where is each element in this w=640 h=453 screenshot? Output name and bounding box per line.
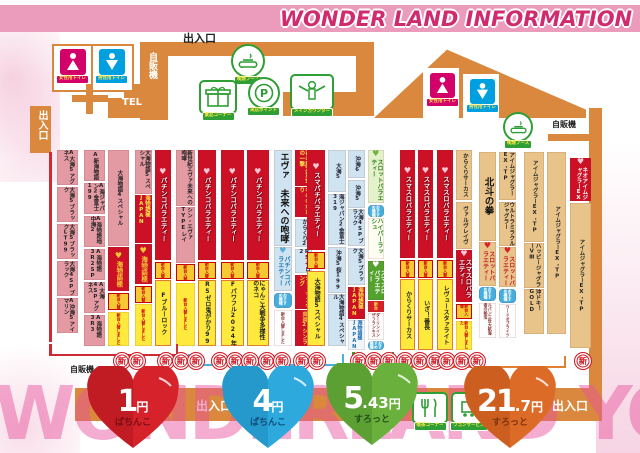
heart-icon: ♥ [159,168,166,176]
machine-name: おすすめ機種 [483,287,491,301]
floor-map-poster: WONDERLAND YOU&I WONDER LAND INFORMATION… [0,0,640,453]
segment-content: ♥海物語極 [140,244,147,284]
machine-name: A大海5アグネス [62,150,74,185]
new-machine-stamp: 新 [574,352,592,370]
machine-name: 新台入替 [205,262,209,278]
segment-content: 海ジャパン2金富士319 [331,194,343,246]
machine-name: 海物語極 [140,256,147,282]
machine-name: 大海5ブラック [350,248,362,285]
rate-type: ぱちんこ [250,415,286,428]
segment-content: 大海5ブラック [62,187,74,222]
machine-segment: 沖海6 [348,150,365,178]
machine-name: 大海4SPブラック [350,209,362,246]
machine-name: 大海5ブラック [62,187,74,222]
machine-column: 大海物語5スペシャル海物語極JAPAN♥海物語極新台入替新台入替しました [135,150,152,346]
rate-amount: 1円 [118,389,149,415]
machine-name: 新台入替 [161,262,165,278]
segment-content: ♥スマスロバラエティー [404,150,411,258]
machine-name: おすすめ機種 [503,289,511,303]
machine-name: ダーリンインザフランキス [372,313,380,340]
machine-name: パチンコバラエティー [254,177,261,242]
segment-content: おすすめ機種 [483,287,491,301]
machine-segment: A大海5アグネス [57,150,78,185]
machine-segment: 沖海5桜199 [328,247,346,293]
machine-segment: アイムジャグラーEX・TP [570,203,591,348]
smoking-glyph [238,51,258,71]
corner-header: ♥スマスロバラエティー [418,150,433,258]
segment-content: 新台入替 [116,293,120,310]
machine-name: A海物語3R2SP [89,249,101,280]
machine-segment: いざ！番長 [418,279,433,350]
machine-name: おすすめ機種 [372,205,380,217]
segment-content: 沖海5 [353,180,359,208]
segment-content: ハイパーラッシュ [369,218,382,259]
machine-name: スマスロバラエティー [457,259,471,302]
machine-segment: 大海5 [328,150,346,192]
rate-label: 21.7円 すろっと [457,366,563,450]
machine-segment: 沖海5 [348,180,365,208]
machine-strip: ♥スマスロバラエティー新台入替からくりサーカス♥スマスロバラエティー新台入替いざ… [400,150,433,350]
new-machine-badge: おすすめ機種 [499,289,516,303]
machine-column: アイムジャグラーEX・TPハッピージャグラーVⅢ沖ドキ！GOLD [524,152,544,334]
segment-content: シン・エヴァTYPEレイ [179,207,191,263]
machine-name: スロットバラエティー [369,159,382,203]
vending-top-label: 自販機 [146,52,159,79]
machine-segment: エヴァ 未来への咆哮 [274,150,292,246]
segment-content: 沖海5桜199 [334,247,340,293]
machine-name: 大海4SPブラック [62,261,74,296]
segment-content: ウルトラミラクルジャグラー [502,202,514,246]
machine-name: ハッピージャグラーVⅢ [528,243,540,288]
machine-segment: 海ジャパン2金富士319 [328,194,346,246]
rate-label: 1円 ぱちんこ [80,366,186,450]
segment-content: 海物語極JAPAN [350,287,362,319]
machine-name: スロットバラエティー [481,251,494,285]
new-machine-stamp: 新 [187,352,205,370]
machine-strip: A大海5アグネス大海5ブラック大海5ブラックLT99大海4SPブラックA沖海5ア… [57,150,78,333]
machine-name: 新台 [374,302,378,310]
machine-segment: 大海物語5スペシャル [307,271,325,346]
machine-column: ♥スロットバラエティーおすすめ機種ハイパーラッシュ♥スマスロバラエティー新台ダー… [368,150,385,350]
rate-type: すろっと [354,412,390,425]
machine-name: おすすめ機種 [279,293,287,308]
bracket-tick [564,356,567,366]
wall-right-ledge [548,134,592,141]
corner-header: ♥パチンコバラエティー [221,150,244,260]
machine-name: 大海物語4スペシャル [116,170,122,226]
new-machine-badge: おすすめ機種 [368,205,385,217]
machine-name: R5ゼロ鬼がかり99 [204,281,210,345]
segment-content: エヴァ 未来への咆哮 [278,150,287,246]
machine-strip: ♥ネオアイムジャグラーEXアイムジャグラーEX・TP [570,158,591,348]
machine-name: 新台入替 [116,293,120,309]
rate-label: 5.43円 すろっと [319,363,425,447]
segment-content: ♥パチンコバラエティー [254,150,261,260]
machine-segment: 新世紀エヴァ未来への咆哮 [176,150,195,206]
machine-name: スロットバラエティー [501,256,514,287]
machine-column: ♥パチンコバラエティー新台入替Fパワフル2024年 [221,150,244,346]
segment-content: アイムジャグラーEX・TP [502,152,514,200]
machine-name: いざ！番長 [422,300,428,330]
machine-name: 新世紀エヴァ未来への咆哮 [179,150,191,206]
smoking-glyph-2 [510,119,527,136]
segment-content: 海物語極JAPAN [137,195,149,243]
machine-strip: 新世紀エヴァ未来への咆哮シン・エヴァTYPEレイ新台入替新台入替しました♥パチン… [176,150,216,346]
new-machine-badge: 新台入替 [176,264,195,281]
entrance-top-label: 出入口 [183,30,216,46]
machine-name: パチンコバラエティー [203,177,210,242]
machine-name: ワードオブライツ [505,305,509,337]
machine-segment: A海ジャパン2金富士199 [84,183,105,214]
segment-content: からくりサーカス [461,150,467,200]
segment-content: 新台 [374,301,378,312]
segment-content: 大海4SPブラック [350,209,362,246]
new-machine-badge: おすすめ機種 [479,287,496,301]
segment-content: からくり2 [300,219,306,247]
machine-column: ♥スマスロバラエティー新台入替レヴュースタァライト [437,150,453,350]
segment-content: 新台入替 [256,262,260,279]
machine-strip: A新海物語A海ジャパン2金富士199A海物語地中海2A海物語3R2SPA大海4S… [84,150,129,346]
heart-icon: ♥ [422,167,429,175]
machine-strip: 沖海6沖海5大海4SPブラック大海5ブラック海物語極JAPAN海物語極JAPAN… [348,150,384,350]
machine-segment: からくりサーカス [456,150,472,200]
machine-segment: 大海物語5スペシャル [135,150,152,194]
segment-content: ワードオブライツ [505,304,509,338]
female-glyph-2 [434,76,451,95]
heart-icon: ♥ [372,261,379,269]
rate-group-bracket [49,330,178,356]
segment-content: からくりサーカス [404,279,410,350]
wall-cross-h [72,95,108,102]
heart-icon: ♥ [504,247,511,255]
new-machine-badge: 新台入替 [108,293,129,310]
segment-content: おすすめ機種 [372,205,380,217]
wall-connector [356,56,374,96]
segment-content: 北斗の拳 [483,152,493,241]
machine-name: アイムジャグラーEX・TP [553,206,559,280]
main-counter-icon: メインカウンター [290,74,334,117]
new-machine-badge: 新台 [368,301,385,312]
machine-name: Fパワフル2024年 [229,281,235,346]
corner-header: ♥スロットバラエティー [499,247,516,287]
segment-content: 新台入替 [460,304,468,320]
tel-label: TEL [122,97,142,108]
segment-content: A大海5アグネス [62,150,74,185]
rate-heart-green: 5.43円 すろっと [319,363,425,447]
segment-content: 新台入替 [405,260,409,278]
vending-right-label: 自販機 [552,119,576,130]
female-toilet-icon-2: 女性用トイレ [426,71,459,107]
segment-content: ♥パチンコバラエティー [203,150,210,260]
machine-segment: アイムジャグラーEX・TP [524,152,544,242]
machine-segment: 大海物語4スペシャル [328,294,346,346]
rate-amount: 21.7円 [477,389,543,415]
segment-content: A沖海5アイマリン [62,298,74,333]
visit-point-icon: P 来店ポイント [247,77,280,116]
heart-icon: ♥ [115,252,122,260]
machine-name: スマスロバラエティー [404,176,411,241]
female-toilet-icon: 女性用トイレ [56,47,89,84]
machine-segment: アイムジャグラーEX・TP [547,152,567,334]
female-glyph [64,52,82,72]
rate-heart-blue: 4円 ぱちんこ [215,366,321,450]
svg-text:P: P [259,87,267,100]
machine-name: 新台入替 [256,262,260,278]
segment-content: 大海4SPブラック [62,261,74,296]
segment-content: レヴュースタァライト [442,279,448,350]
segment-content: ダーリンインザフランキス [372,313,380,340]
machine-name: 海物語極 [115,261,122,287]
segment-content: 新台入替 [443,260,447,278]
machine-segment: R5ゼロ鬼がかり99 [198,280,217,346]
bracket-tick [49,344,52,354]
segment-content: ♥スマスロバラエティー [441,150,448,258]
male-glyph-2 [474,82,491,101]
machine-name: 沖海5桜199 [334,250,340,291]
segment-content: アイムジャグラーEX・TP [578,203,584,348]
counter-staff-glyph [296,80,328,104]
corner-header: ♥スマスロバラエティー [437,150,453,258]
heart-icon: ♥ [140,247,147,255]
machine-name: からくりサーカス [461,153,467,197]
machine-name: A大海4SPアグネス [86,282,103,313]
machine-name: 沖海5 [353,185,359,202]
machine-column: 大海5海ジャパン2金富士319沖海5桜199大海物語4スペシャル [328,150,346,346]
machine-strip: アイムジャグラーEX・TPハッピージャグラーVⅢ沖ドキ！GOLDアイムジャグラー… [524,152,566,334]
machine-column: 北斗の拳♥スロットバラエティーおすすめ機種ルパン三世大航海者の秘宝 [479,152,496,338]
machine-strip: 大海物語5スペシャル海物語極JAPAN♥海物語極新台入替新台入替しました♥パチン… [135,150,171,346]
machine-name: 新台入替 [141,286,145,302]
segment-content: 大海5ブラック [350,248,362,285]
segment-content: ヴァルヴレイヴ [461,202,467,249]
bracket-riser [49,152,52,342]
segment-content: ♥スマスロバラエティー [369,261,382,300]
machine-name: 新台入替 [183,265,187,281]
machine-segment: にゃんこ大戦争多様性のネコ [247,280,270,346]
new-machine-badge: 新台入替 [400,260,415,278]
machine-strip: ♥パチンコバラエティー新台入替Fパワフル2024年♥パチンコバラエティー新台入替… [221,150,269,346]
machine-name: 新台入替 [443,261,447,277]
rate-heart-red: 1円 ぱちんこ [80,366,186,450]
machine-name: 新台入替 [423,261,427,277]
rate-amount: 5.43円 [343,386,400,412]
segment-content: 大海物語5スペシャル [313,271,319,346]
machine-name: アイムジャグラーEX・TP [531,160,537,234]
segment-content: 新台入替 [161,262,165,279]
rate-type: すろっと [492,415,528,428]
machine-name: ヴァルヴレイヴ [461,206,467,245]
machine-column: ♥スマスロバラエティー新台入替いざ！番長 [418,150,433,350]
machine-column: ♥パチンコバラエティー新台入替Fブルーロック [155,150,172,346]
machine-segment: 海物語極JAPAN [348,287,365,319]
segment-content: 新台入替 [230,262,234,279]
segment-content: A海物語地中海2 [89,216,101,247]
segment-content: ♥スロットバラエティー [369,150,382,203]
heart-icon: ♥ [229,168,236,176]
machine-name: 海物語極JAPAN [350,287,362,319]
new-machine-badge: 新台入替 [437,260,453,278]
segment-content: A新海物語 [92,150,98,181]
rate-type: ぱちんこ [115,415,151,428]
machine-name: にゃんこ大戦争多様性のネコ [251,280,264,346]
smoking-booth-icon-2: 喫煙ブース [503,112,533,149]
machine-strip: ♥スマパチバラエティー新台入替大海物語5スペシャル大海5海ジャパン2金富士319… [307,150,346,346]
segment-content: Fパワフル2024年 [229,280,235,346]
machine-column: アイムジャグラーEX・TP [547,152,567,334]
new-machine-badge: 新台入替 [247,262,270,279]
rate-heart-orange: 21.7円 すろっと [457,366,563,450]
machine-segment: A沖海5アイマリン [57,298,78,333]
machine-column: A大海5アグネス大海5ブラック大海5ブラックLT99大海4SPブラックA沖海5ア… [57,150,78,333]
machine-name: パチンコバラエティー [229,177,236,242]
heart-icon: ♥ [404,167,411,175]
new-machine-badge: 新台入替 [198,262,217,279]
machine-segment: 大海物語4スペシャル [108,150,129,246]
segment-content: ♥ネオアイムジャグラーEX [575,158,587,201]
machine-segment: ヴァルヴレイヴ [456,202,472,249]
segment-content: 新台入替 [141,286,145,303]
machine-name: 大海物語5スペシャル [313,278,319,339]
machine-name: パチンコバラエティー [276,256,289,291]
corner-header: ♥パチンコバラエティー [274,247,292,291]
new-machine-badge: 新台入替 [155,262,172,279]
machine-segment: ウルトラミラクルジャグラー [499,202,516,246]
segment-content: ♥パチンコバラエティー [159,150,166,260]
machine-segment: 海物語極JAPAN [135,195,152,243]
machine-name: 新台入替 [405,261,409,277]
segment-content: ♥スロットバラエティー [501,247,514,287]
machine-name: A海物語地中海2 [89,216,101,247]
segment-content: 新台入替 [314,252,318,269]
machine-segment: シン・エヴァTYPEレイ [176,207,195,263]
machine-name: 大海物語5スペシャル [137,150,149,194]
segment-content: 大海5ブラックLT99 [62,224,74,259]
machine-name: 北斗の拳 [483,177,493,215]
machine-name: A新海物語 [92,152,98,180]
segment-content: ♥海物語極 [115,247,122,291]
segment-content: ハッピージャグラーVⅢ [528,243,540,288]
machine-name: エヴァ 未来への咆哮 [278,152,287,243]
corner-header: ♥スロットバラエティー [368,150,385,203]
segment-content: にゃんこ大戦争多様性のネコ [251,280,264,346]
machine-strip: 北斗の拳♥スロットバラエティーおすすめ機種ルパン三世大航海者の秘宝アイムジャグラ… [479,152,516,338]
machine-name: 沖海6 [353,156,359,173]
machine-segment: からくりサーカス [400,279,415,350]
segment-content: おすすめ機種 [279,293,287,308]
machine-strip: ♥スマスロバラエティー新台入替レヴュースタァライトからくりサーカスヴァルヴレイヴ… [437,150,472,350]
machine-name: 新台入替 [460,304,468,320]
corner-header: ♥パチンコバラエティー [155,150,172,260]
new-machine-badge: 新台入替 [456,304,472,320]
corner-header: ♥スマスロバラエティー [400,150,415,258]
machine-name: ウルトラミラクルジャグラー [502,202,514,246]
heart-icon: ♥ [441,167,448,175]
machine-segment: ハッピージャグラーVⅢ [524,243,544,288]
machine-segment: Fパワフル2024年 [221,280,244,346]
machine-segment: レヴュースタァライト [437,279,453,350]
corner-header: ♥ネオアイムジャグラーEX [570,158,591,201]
machine-name: A海ジャパン2金富士199 [86,183,103,214]
segment-content: 沖ドキ！GOLD [528,289,540,334]
machine-name: アイムジャグラーEX・TP [502,152,514,200]
male-glyph [103,52,121,72]
rate-amount: 4円 [253,389,284,415]
machine-segment: 北斗の拳 [479,152,496,241]
machine-name: ネオアイムジャグラーEX [575,167,587,201]
corner-header: ♥パチンコバラエティー [247,150,270,260]
machine-segment: 大海5ブラック [57,187,78,222]
new-machine-badge: 新台入替 [135,286,152,303]
segment-content: 新世紀エヴァ未来への咆哮 [179,150,191,206]
new-machine-badge: 新台入替 [418,260,433,278]
segment-content: アイムジャグラーEX・TP [553,152,559,334]
heart-icon: ♥ [460,250,467,258]
machine-column: ♥スマスロバラエティー新台入替からくりサーカス [400,150,415,350]
segment-content: ♥スマスロバラエティー [457,250,471,302]
entrance-left-label: 出入口 [34,110,49,140]
segment-content: ♥スロットバラエティー [481,242,494,285]
machine-name: A沖海5アイマリン [62,298,74,333]
heart-icon: ♥ [372,150,379,158]
corner-header: ハイパーラッシュ [368,218,385,259]
new-machine-badge: 新台入替 [307,252,325,269]
heart-icon: ♥ [279,247,286,255]
machine-segment: ♥海物語極 [108,247,129,291]
corner-header: ♥スマスロバラエティー [456,250,472,302]
prize-corner-icon: 景品コーナー [199,80,237,121]
segment-content: R5ゼロ鬼がかり99 [204,280,210,346]
machine-name: ルパン三世大航海者の秘宝 [483,303,491,339]
machine-column: 新世紀エヴァ未来への咆哮シン・エヴァTYPEレイ新台入替新台入替しました [176,150,195,346]
heart-icon: ♥ [577,158,584,166]
rate-label: 4円 ぱちんこ [215,366,321,450]
segment-content: ルパン三世大航海者の秘宝 [483,303,491,339]
segment-content: ♥スマスロバラエティー [422,150,429,258]
segment-content: 新台入替しました [183,283,187,346]
segment-content: 新台入替 [183,264,187,281]
machine-name: スマスロバラエティー [368,270,385,300]
machine-segment: 大海4SPブラック [348,209,365,246]
machine-column: エヴァ 未来への咆哮♥パチンコバラエティーおすすめ機種新台入替しました [274,150,292,346]
male-toilet-icon-2: 男性用トイレ [466,77,499,113]
segment-content: ♥スマパチバラエティー [312,150,319,250]
point-p-glyph: P [254,83,274,103]
segment-content: A海物語3R2SP [89,249,101,280]
machine-segment: アイムジャグラーEX・TP [499,152,516,200]
machine-column: 大海物語4スペシャル♥海物語極新台入替新台入替しました [108,150,129,346]
segment-content: 大海物語4スペシャル [116,150,122,246]
corner-header: ♥パチンコバラエティー [198,150,217,260]
machine-column: ♥パチンコバラエティー新台入替にゃんこ大戦争多様性のネコ [247,150,270,346]
machine-name: パチンコバラエティー [159,177,166,242]
segment-content: ♥パチンコバラエティー [276,247,289,291]
machine-name: 新台入替 [314,253,318,269]
corner-header: ♥スロットバラエティー [479,242,496,285]
segment-content: 沖海6 [353,150,359,178]
heart-icon: ♥ [484,242,491,250]
segment-content: A大海4SPアグネス [86,282,103,313]
machine-column: 沖海6沖海5大海4SPブラック大海5ブラック海物語極JAPAN海物語極JAPAN [348,150,365,350]
heart-icon: ♥ [312,163,319,171]
new-machine-badge: おすすめ機種 [274,293,292,308]
heart-icon: ♥ [203,168,210,176]
machine-column: からくりサーカスヴァルヴレイヴ♥スマスロバラエティー新台入替新台入替しました [456,150,472,350]
segment-content: ♥パチンコバラエティー [229,150,236,260]
machine-name: 大海5ブラックLT99 [62,224,74,259]
machine-name: からくり2 [300,219,306,247]
machine-name: Fブルーロック [160,292,166,335]
machine-column: ♥パチンコバラエティー新台入替R5ゼロ鬼がかり99 [198,150,217,346]
